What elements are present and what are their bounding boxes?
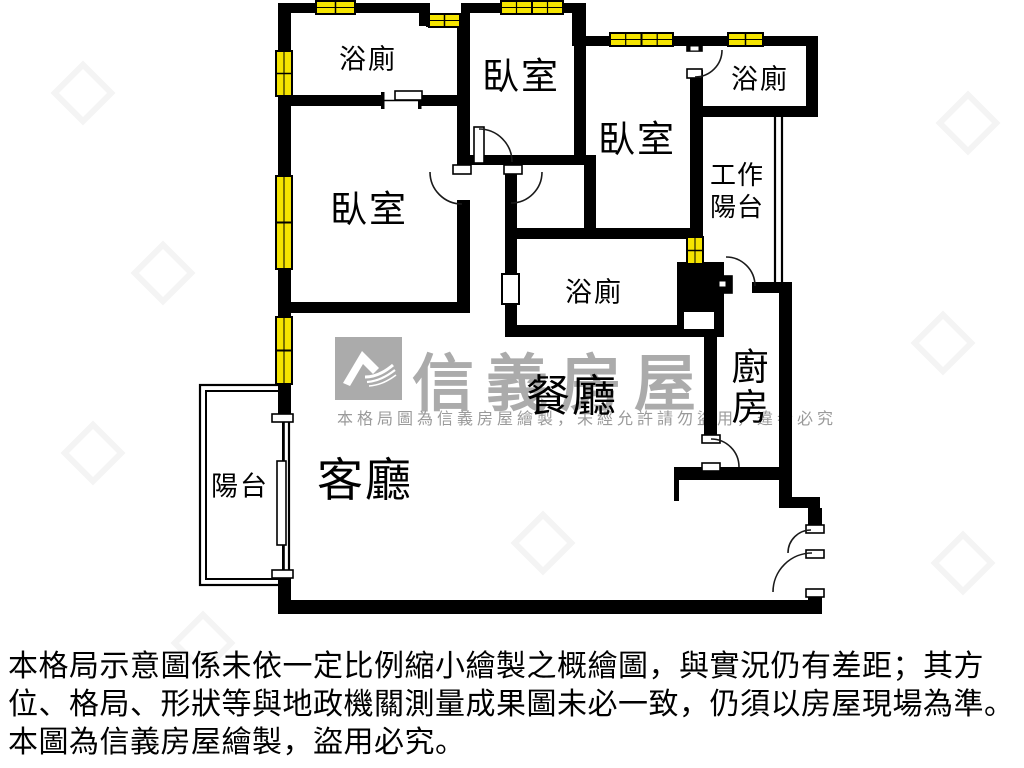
disclaimer-line-1: 本格局示意圖係未依一定比例縮小繪製之概繪圖，與實況仍有差距；其方: [8, 648, 1020, 686]
work-balcony-line2: 陽台: [710, 193, 764, 222]
floor-plan-page: 信義房屋 本格局圖為信義房屋繪製，未經允許請勿盜用，違者必究: [0, 0, 1024, 768]
room-label-dining: 餐廳: [526, 373, 618, 421]
room-label-kitchen: 廚 房: [732, 349, 769, 429]
room-label-balcony: 陽台: [211, 472, 269, 501]
window-icon: [728, 33, 763, 46]
window-icon: [687, 237, 703, 264]
disclaimer-line-2: 位、格局、形狀等與地政機關測量成果圖未必一致，仍須以房屋現場為準。: [8, 686, 1020, 724]
window-icon: [316, 1, 355, 14]
kitchen-char1: 廚: [732, 349, 769, 389]
work-balcony-railing: [775, 117, 782, 283]
window-icon: [276, 51, 292, 96]
room-label-bedroom-left: 臥室: [330, 191, 408, 231]
door-icon: [773, 525, 824, 597]
window-icon: [502, 274, 519, 304]
window-icon: [276, 317, 292, 384]
room-label-bathroom-top-right: 浴廁: [731, 65, 789, 94]
window-icon: [276, 176, 292, 269]
room-label-work-balcony: 工作 陽台: [710, 160, 764, 224]
sliding-door-icon: [381, 91, 422, 109]
work-balcony-line1: 工作: [710, 161, 764, 190]
kitchen-char2: 房: [732, 389, 769, 429]
window-icon: [429, 14, 460, 27]
room-label-bedroom-right: 臥室: [598, 121, 676, 161]
disclaimer-text: 本格局示意圖係未依一定比例縮小繪製之概繪圖，與實況仍有差距；其方 位、格局、形狀…: [8, 648, 1020, 762]
room-label-living: 客廳: [317, 456, 413, 506]
door-icon: [430, 165, 471, 204]
door-icon: [719, 257, 755, 293]
room-label-bathroom-top-left: 浴廁: [339, 45, 397, 74]
door-icon: [702, 435, 739, 471]
disclaimer-line-3: 本圖為信義房屋繪製，盜用必究。: [8, 724, 1020, 762]
room-label-bedroom-top-center: 臥室: [482, 58, 560, 98]
window-icon: [501, 1, 563, 14]
window-icon: [610, 33, 673, 46]
shaft-notch: [684, 312, 714, 329]
room-label-bathroom-center: 浴廁: [565, 278, 623, 307]
